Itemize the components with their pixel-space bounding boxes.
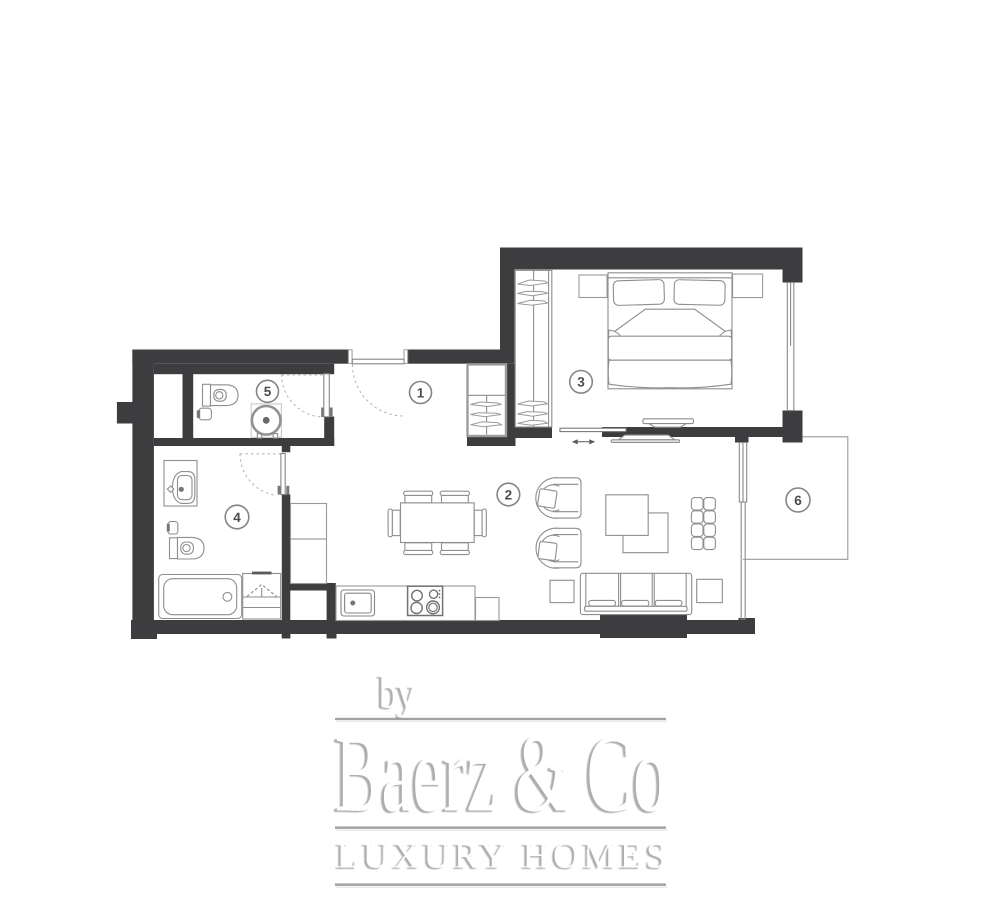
svg-text:by: by <box>379 667 416 718</box>
svg-text:5: 5 <box>264 384 272 399</box>
svg-text:2: 2 <box>505 487 513 502</box>
svg-text:6: 6 <box>794 493 802 508</box>
svg-text:1: 1 <box>417 385 425 400</box>
svg-text:4: 4 <box>233 510 241 525</box>
svg-text:3: 3 <box>577 375 585 390</box>
svg-text:Baerz & Co: Baerz & Co <box>335 713 668 836</box>
